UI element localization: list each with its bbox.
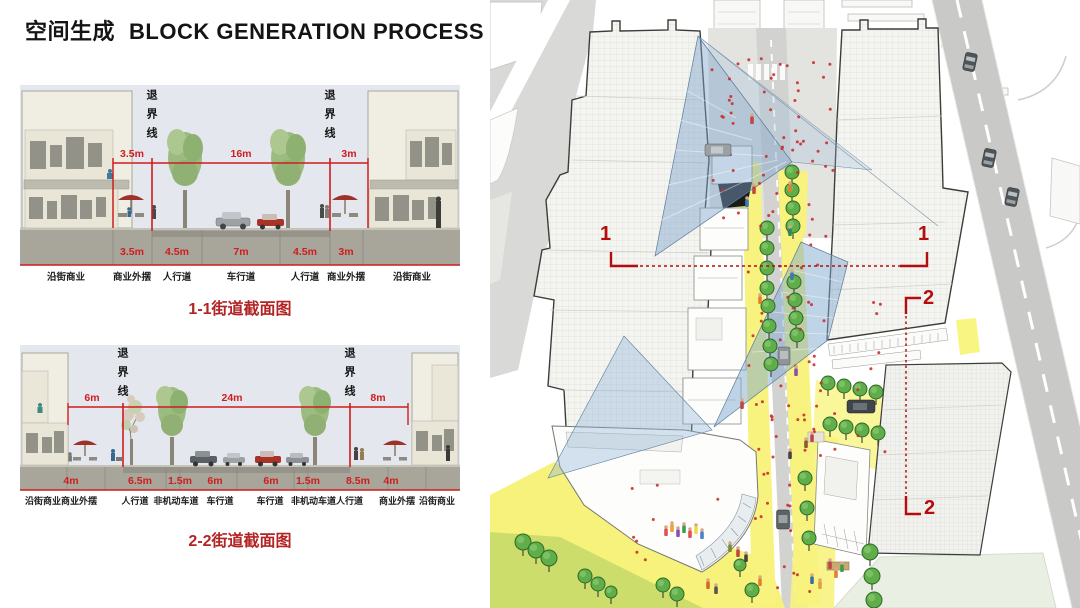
zone-label: 商业外摆 [379, 497, 415, 506]
street-section-2-2-figure: 退界线 退界线 6m 24m 8m 4m 6.5m 1.5m 6m 6m 1.5… [20, 345, 460, 525]
dim-bottom: 6m [207, 476, 222, 487]
zone-label: 人行道 [291, 273, 320, 283]
zone-label: 沿街商业 [47, 273, 85, 283]
zone-label: 商业外摆 [327, 273, 365, 283]
figure-caption-1-1: 1-1街道截面图 [20, 300, 460, 319]
dim-bottom: 1.5m [168, 476, 192, 487]
road-side-yellow [956, 318, 980, 355]
zone-label: 人行道 [121, 497, 148, 506]
left-building [22, 91, 132, 228]
zone-label: 非机动车道 [153, 497, 198, 506]
right-building [368, 91, 458, 228]
dim-top: 3.5m [120, 149, 144, 160]
setback-line-label: 退界线 [343, 347, 354, 404]
dim-bottom: 6m [263, 476, 278, 487]
zone-label: 沿街商业 [393, 273, 431, 283]
page-title-en: BLOCK GENERATION PROCESS [129, 19, 484, 44]
dim-bottom: 3m [338, 247, 353, 258]
section-marker-2: 2 [924, 498, 935, 518]
dim-bottom: 4m [383, 476, 398, 487]
left-building [22, 353, 68, 465]
dim-top: 24m [221, 393, 242, 404]
zone-label: 沿街商业 [419, 497, 455, 506]
page-title-zh: 空间生成 [25, 19, 115, 44]
dim-bottom: 4.5m [293, 247, 317, 258]
dim-top: 6m [84, 393, 99, 404]
dim-bottom: 4m [63, 476, 78, 487]
dim-top: 3m [341, 149, 356, 160]
dim-bottom: 6.5m [128, 476, 152, 487]
dim-bottom: 1.5m [296, 476, 320, 487]
sky [20, 345, 460, 465]
site-plan-illustration [490, 0, 1080, 608]
dim-top: 8m [370, 393, 385, 404]
site-plan-panel: 1 1 2 2 [490, 0, 1080, 608]
section-marker-1: 1 [918, 224, 929, 244]
zone-label: 车行道 [256, 497, 283, 506]
zone-label: 沿街商业商业外摆 [25, 497, 97, 506]
zone-label: 车行道 [227, 273, 256, 283]
section-marker-1: 1 [600, 224, 611, 244]
setback-line-label: 退界线 [145, 89, 156, 146]
zone-label: 商业外摆 [113, 273, 151, 283]
dim-top: 16m [230, 149, 251, 160]
right-building [412, 353, 458, 465]
dim-bottom: 8.5m [346, 476, 370, 487]
zone-label: 人行道 [163, 273, 192, 283]
setback-line-label: 退界线 [116, 347, 127, 404]
page-title: 空间生成BLOCK GENERATION PROCESS [25, 14, 484, 46]
figure-caption-2-2: 2-2街道截面图 [20, 532, 460, 551]
slide: 空间生成BLOCK GENERATION PROCESS [0, 0, 1080, 608]
setback-line-label: 退界线 [323, 89, 334, 146]
zone-label: 非机动车道人行道 [291, 497, 363, 506]
street-section-1-1-figure: 退界线 退界线 3.5m 16m 3m 3.5m 4.5m 7m 4.5m 3m… [20, 85, 460, 295]
section-marker-2: 2 [923, 288, 934, 308]
street-section-1-1-drawing [20, 85, 460, 295]
dim-bottom: 7m [233, 247, 248, 258]
zone-label: 车行道 [206, 497, 233, 506]
dim-bottom: 3.5m [120, 247, 144, 258]
dim-bottom: 4.5m [165, 247, 189, 258]
